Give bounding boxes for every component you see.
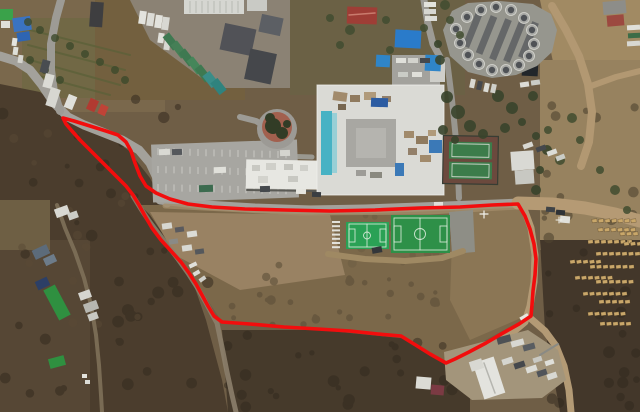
- woods-left-light-speck-12: [118, 200, 125, 207]
- beehive-row-2-box-4: [624, 228, 629, 232]
- woods-left-speckles-speck-16: [148, 298, 155, 305]
- beehive-row-11-box-4: [614, 312, 619, 316]
- beehive-row-5-box-1: [576, 260, 582, 264]
- aerial-photo-svg: [0, 0, 640, 412]
- beehive-row-5-box-0: [570, 260, 576, 264]
- woods-left-speckles-speck-28: [116, 338, 124, 346]
- br-road-car-1: [546, 207, 555, 213]
- hedge-dots-garden-clump-9: [111, 66, 119, 74]
- beehive-row-1-box-5: [624, 219, 629, 223]
- tree-clumps-center-clump-14: [531, 185, 541, 195]
- woods-left-speckles-speck-38: [40, 334, 51, 345]
- beehive-row-5-box-3: [589, 260, 595, 264]
- scrub-interior-speckles-speck-14: [345, 277, 354, 286]
- scrub-interior-speckles-speck-15: [387, 277, 391, 281]
- roof-clutter-2: [350, 95, 360, 102]
- blue-roof-east: [429, 140, 442, 153]
- beehive-row-6-box-0: [590, 265, 595, 269]
- beehive-row-12-box-3: [619, 322, 624, 326]
- beehive-row-3-box-0: [588, 240, 593, 244]
- scrub-interior-speckles-speck-23: [362, 280, 368, 286]
- scrub-interior-speckles-speck-16: [276, 262, 283, 269]
- woods-bottom-speckles-speck-18: [360, 366, 370, 376]
- woods-bottom-speckles-speck-22: [389, 341, 395, 347]
- tree-clumps-center-clump-3: [478, 129, 488, 139]
- woods-bottom-speckles-speck-6: [328, 375, 340, 387]
- road-car-2: [312, 192, 321, 197]
- beehive-row-7-box-5: [607, 276, 612, 280]
- beehive-row-14-box-1: [630, 242, 635, 246]
- beehive-row-2-box-5: [630, 228, 635, 232]
- storage-tank-top-3: [476, 61, 482, 67]
- woods-left-light-speck-14: [134, 314, 140, 320]
- hedge-dots-garden-clump-5: [96, 58, 104, 66]
- blue-roof-panel: [371, 98, 388, 108]
- woods-bottom-speckles-speck-21: [240, 369, 252, 381]
- beehive-row-8-box-5: [628, 280, 633, 284]
- beehive-row-9-box-4: [609, 292, 614, 296]
- tree-clumps-topright-clump-15: [623, 206, 631, 214]
- woods-left-speckles-speck-30: [65, 164, 70, 169]
- woods-rb-speckles-speck-17: [619, 330, 627, 338]
- woods-bottom-speckles-speck-13: [343, 394, 355, 406]
- toplot-car-4: [398, 72, 408, 77]
- scrub-right-speckles-speck-10: [551, 111, 561, 121]
- woods-left-light-speck-4: [69, 277, 77, 285]
- storage-tank-top-4: [489, 67, 495, 73]
- beehive-row-12-box-2: [613, 322, 618, 326]
- storage-tank-top-9: [529, 27, 535, 33]
- woods-left-speckles-speck-10: [114, 277, 124, 287]
- courtyard-inner: [356, 128, 386, 158]
- tree-clumps-topright-clump-6: [382, 16, 390, 24]
- front-wing-unit-5: [258, 176, 268, 183]
- beehive-row-13-box-1: [626, 232, 631, 236]
- beehive-row-6: [590, 265, 634, 269]
- hedge-dots-garden-clump-0: [24, 18, 32, 26]
- woods-left-speckles-speck-8: [29, 178, 38, 187]
- beehive-row-9-box-2: [596, 292, 601, 296]
- scrub-interior-speckles-speck-9: [231, 315, 236, 320]
- toplot-car-1: [396, 58, 406, 63]
- woods-left-light-speck-3: [73, 231, 82, 240]
- beehive-row-1: [592, 219, 636, 223]
- scrub-interior-speckles-speck-11: [337, 309, 342, 314]
- beehive-row-6-box-4: [616, 265, 621, 269]
- woods-left-speckles-speck-13: [74, 220, 79, 225]
- woods-bottom-speckles-speck-24: [237, 390, 247, 400]
- woods-bottom-speckles-speck-8: [268, 388, 274, 394]
- tree-clumps-topright-clump-12: [544, 126, 552, 134]
- beehive-row-8-box-2: [609, 280, 614, 284]
- front-wing-unit-4: [300, 165, 308, 171]
- er-truck-2: [628, 33, 640, 39]
- beehive-row-4-box-3: [615, 252, 620, 256]
- hedge-dots-garden-clump-10: [121, 76, 129, 84]
- woods-rb-speckles-speck-19: [633, 376, 640, 383]
- woods-rb-speckles-speck-13: [573, 305, 581, 313]
- tree-clumps-topright-clump-5: [326, 14, 334, 22]
- scrub-interior-speckles-speck-8: [257, 292, 263, 298]
- beehive-row-9-box-3: [602, 292, 607, 296]
- scrub-interior-speckles-speck-3: [385, 314, 391, 320]
- tl-blue-building-2: [16, 31, 30, 42]
- front-wing-shadow: [247, 190, 318, 191]
- tree-clumps-center-clump-8: [528, 91, 538, 101]
- tl-green-building: [0, 9, 13, 20]
- roof-clutter-11: [356, 170, 366, 176]
- woods-rb-speckles-speck-1: [546, 310, 553, 317]
- woods-left-speckles-speck-5: [75, 179, 84, 188]
- storage-tank-top-12: [493, 4, 499, 10]
- cyan-skylight-strip: [321, 111, 332, 175]
- beehive-row-10: [599, 300, 630, 304]
- lot-car-4: [260, 186, 270, 192]
- tree-clumps-center-clump-2: [464, 120, 476, 132]
- woods-rb-speckles-speck-9: [545, 270, 551, 276]
- woods-left-light-speck-8: [68, 318, 77, 327]
- scrub-interior-speckles-speck-6: [408, 281, 414, 287]
- tree-clumps-center-clump-6: [500, 123, 510, 133]
- front-wing-unit-1: [252, 165, 260, 171]
- woods-rb-speckles-speck-18: [554, 398, 564, 408]
- beehive-row-5: [570, 260, 602, 264]
- beehive-row-7-box-3: [594, 276, 599, 280]
- scrub-right-speckles-speck-6: [543, 170, 551, 178]
- beehive-row-6-box-6: [629, 265, 634, 269]
- woods-left-light-speck-16: [82, 244, 88, 250]
- beehive-row-9: [583, 292, 627, 296]
- beehive-row-6-box-3: [609, 265, 614, 269]
- roof-clutter-10: [420, 155, 431, 162]
- woods-bottom-speckles-speck-1: [295, 352, 301, 358]
- beehive-row-1-box-3: [611, 219, 616, 223]
- woods-left-speckles-speck-39: [152, 287, 164, 299]
- beehive-row-9-box-6: [622, 292, 627, 296]
- tree-clumps-topright-clump-8: [420, 24, 428, 32]
- beehive-row-14-box-0: [624, 242, 629, 246]
- tree-clumps-topright-clump-7: [386, 46, 394, 54]
- hedge-dots-garden-clump-2: [51, 34, 59, 42]
- woods-left-speckles-speck-31: [0, 373, 11, 384]
- woods-rb-speckles-speck-11: [603, 346, 615, 358]
- beehive-row-4-box-2: [609, 252, 614, 256]
- lot-green-bus: [199, 185, 213, 192]
- storage-tank-top-8: [531, 41, 537, 47]
- scrub-interior-speckles-speck-19: [313, 314, 318, 319]
- tree-clumps-topright-clump-1: [446, 16, 454, 24]
- er-truck-3: [627, 41, 640, 47]
- scrub-interior-speckles-speck-20: [266, 295, 275, 304]
- scrub-interior-speckles-speck-13: [262, 273, 270, 281]
- bl-terrace-field: [0, 200, 50, 250]
- dark-shed-top: [89, 2, 104, 28]
- woods-rb-speckles-speck-12: [617, 377, 628, 388]
- storage-tank-top-2: [465, 52, 471, 58]
- beehive-row-7-box-0: [575, 276, 580, 280]
- woods-left-light-speck-10: [44, 129, 52, 137]
- beehive-row-9-box-0: [583, 292, 588, 296]
- beehive-row-4: [596, 252, 640, 256]
- woods-left-speckles-speck-24: [122, 378, 134, 390]
- roof-clutter-5: [338, 104, 346, 110]
- beehive-row-11-box-3: [607, 312, 612, 316]
- scrub-interior-speckles-speck-24: [434, 301, 440, 307]
- warehouse-top2: [247, 0, 267, 11]
- beehive-row-12-box-0: [600, 322, 605, 326]
- scrub-interior-speckles-speck-1: [346, 314, 353, 321]
- scrub-right-speckles-speck-9: [547, 101, 556, 110]
- beehive-row-1-box-1: [598, 219, 603, 223]
- tree-clumps-center-clump-1: [451, 105, 465, 119]
- plaza-trees-clump-3: [283, 120, 291, 128]
- scrub-interior-speckles-speck-10: [229, 303, 236, 310]
- beehive-row-8-box-0: [596, 280, 601, 284]
- woods-left-speckles-speck-12: [175, 104, 181, 110]
- scrub-interior-speckles-speck-2: [433, 290, 437, 294]
- beehive-row-10-box-4: [625, 300, 630, 304]
- tree-clumps-topright-clump-10: [576, 136, 584, 144]
- woods-left-speckles-speck-23: [186, 378, 197, 389]
- beehive-row-11-box-0: [588, 312, 593, 316]
- woods-left-speckles-speck-20: [143, 367, 152, 376]
- road-car-1: [296, 189, 306, 194]
- woods-left-speckles-speck-14: [15, 322, 23, 330]
- woods-left-light-speck-5: [31, 160, 37, 166]
- storage-tank-top-13: [478, 7, 484, 13]
- beehive-row-4-box-0: [596, 252, 601, 256]
- beehive-row-11-box-5: [620, 312, 625, 316]
- beehive-row-9-box-1: [589, 292, 594, 296]
- tl-white-building: [1, 21, 10, 28]
- hedge-dots-garden-clump-4: [81, 50, 89, 58]
- lot-car-5: [280, 150, 290, 156]
- toplot-car-2: [408, 58, 418, 63]
- woods-bottom-speckles-speck-0: [243, 331, 252, 340]
- beehive-row-12: [600, 322, 631, 326]
- beehive-row-1-box-4: [618, 219, 623, 223]
- scrub-right-speckles-speck-1: [631, 103, 639, 111]
- woods-rb-speckles-speck-0: [604, 378, 614, 388]
- roof-clutter-7: [416, 136, 428, 144]
- storage-tank-top-5: [503, 67, 509, 73]
- woods-left-speckles-speck-26: [106, 188, 116, 198]
- plaza-trees-clump-1: [276, 127, 288, 139]
- beehive-row-10-box-0: [599, 300, 604, 304]
- beehive-row-9-box-5: [615, 292, 620, 296]
- beehive-row-10-box-1: [605, 300, 610, 304]
- woods-rb-speckles-speck-16: [625, 401, 635, 411]
- storage-tank-top-6: [516, 62, 522, 68]
- beehive-row-4-box-5: [628, 252, 633, 256]
- beehive-row-13-box-0: [620, 232, 625, 236]
- beehive-row-1-box-2: [605, 219, 610, 223]
- beehive-row-11-box-1: [594, 312, 599, 316]
- front-wing-unit-2: [266, 163, 276, 170]
- toplot-car-5: [412, 72, 422, 77]
- beehive-row-2-box-1: [604, 228, 609, 232]
- hedge-dots-garden-clump-1: [36, 26, 44, 34]
- woods-bottom-speckles-speck-23: [397, 369, 404, 376]
- tree-clumps-center-clump-0: [441, 91, 453, 103]
- right-edge-building-2: [607, 14, 625, 26]
- beehive-row-3-box-1: [594, 240, 599, 244]
- soccer-field: [391, 215, 450, 253]
- beehive-row-14: [624, 242, 640, 246]
- beehive-row-7-box-4: [601, 276, 606, 280]
- hedge-dots-garden-clump-8: [56, 76, 64, 84]
- beehive-row-4-box-4: [622, 252, 627, 256]
- woods-left-speckles-speck-36: [26, 389, 35, 398]
- woods-bottom-speckles-speck-9: [392, 355, 401, 364]
- scrub-interior-speckles-speck-22: [288, 299, 294, 305]
- beehive-row-2-box-3: [617, 228, 622, 232]
- storage-tank-top-0: [453, 26, 459, 32]
- se-white-building-2: [515, 169, 535, 184]
- futsal-court: [346, 222, 389, 249]
- woods-bottom-speckles-speck-15: [439, 342, 447, 350]
- lot-car-2: [172, 149, 182, 155]
- plaza-trees-clump-2: [265, 113, 275, 123]
- beehive-row-2-box-0: [598, 228, 603, 232]
- white-shed: [416, 376, 432, 389]
- beehive-row-8-box-1: [602, 280, 607, 284]
- beehive-row-8-box-3: [615, 280, 620, 284]
- beehive-row-10-box-2: [612, 300, 617, 304]
- tree-clumps-center-clump-13: [536, 166, 544, 174]
- top-car-row-1: [424, 2, 436, 7]
- woods-left-speckles-speck-27: [112, 316, 124, 328]
- blue-roof-south: [395, 163, 404, 176]
- br-road-car-2: [556, 210, 565, 216]
- storage-tank-top-1: [457, 40, 463, 46]
- woods-rb-speckles-speck-21: [616, 393, 624, 401]
- er-truck-1: [627, 25, 640, 31]
- tree-clumps-topright-clump-14: [610, 185, 620, 195]
- top-car-row-3: [425, 16, 437, 21]
- tree-clumps-topright-clump-9: [567, 113, 577, 123]
- tree-clumps-topright-clump-3: [345, 25, 355, 35]
- woods-rb-speckles-speck-15: [580, 248, 588, 256]
- woods-left-light-speck-2: [18, 244, 26, 252]
- woods-left-speckles-speck-34: [55, 386, 65, 396]
- woods-left-light-speck-9: [121, 192, 129, 200]
- storage-tank-top-7: [526, 53, 532, 59]
- front-wing-unit-6: [288, 176, 298, 182]
- woods-left-light-speck-15: [9, 134, 18, 143]
- lot-car-3: [214, 167, 226, 173]
- woods-left-speckles-speck-1: [146, 248, 154, 256]
- roof-clutter-6: [404, 131, 414, 138]
- field-gravel: [449, 210, 475, 254]
- scrub-right-speckles-speck-3: [628, 187, 639, 198]
- beehive-row-8-box-4: [622, 280, 627, 284]
- beehive-row-1-box-6: [631, 219, 636, 223]
- tree-clumps-center-clump-16: [434, 40, 442, 48]
- roof-clutter-9: [408, 148, 417, 155]
- bl-slope: [0, 240, 90, 412]
- beehive-row-13-box-2: [633, 232, 638, 236]
- satellite-image: [0, 0, 640, 412]
- beehive-row-10-box-3: [618, 300, 623, 304]
- roof-clutter-8: [428, 130, 436, 136]
- beehive-row-5-box-4: [596, 260, 602, 264]
- woods-left-speckles-speck-35: [168, 277, 179, 288]
- beehive-row-3-box-3: [607, 240, 612, 244]
- beehive-row-13: [620, 232, 638, 236]
- scrub-interior-speckles-speck-5: [270, 277, 278, 285]
- tree-clumps-center-clump-5: [506, 102, 518, 114]
- woods-bottom-speckles-speck-7: [273, 393, 280, 400]
- woods-left-speckles-speck-15: [86, 230, 98, 242]
- woods-left-speckles-speck-32: [131, 95, 140, 104]
- beehive-row-12-box-4: [626, 322, 631, 326]
- beehive-row-5-box-2: [583, 260, 589, 264]
- tree-clumps-topright-clump-13: [596, 166, 604, 174]
- front-wing-unit-3: [284, 164, 293, 170]
- beehive-row-6-box-2: [603, 265, 608, 269]
- beehive-row-7-box-1: [581, 276, 586, 280]
- woods-bottom-speckles-speck-4: [240, 402, 251, 412]
- tree-clumps-center-clump-9: [438, 125, 448, 135]
- beehive-row-12-box-1: [606, 322, 611, 326]
- bl-white-dot-2: [85, 380, 90, 384]
- roof-clutter-12: [370, 172, 382, 178]
- hedge-dots-garden-clump-3: [66, 42, 74, 50]
- field-stall-dashes: [332, 222, 340, 247]
- scrub-interior-speckles-speck-0: [417, 293, 425, 301]
- tree-clumps-topright-clump-4: [336, 41, 344, 49]
- woods-left-speckles-speck-9: [158, 112, 169, 123]
- tree-clumps-center-clump-15: [435, 55, 445, 65]
- storage-tank-top-14: [464, 14, 470, 20]
- lot-car-1: [159, 149, 170, 155]
- beehive-row-1-box-0: [592, 219, 597, 223]
- beehive-row-3-box-2: [601, 240, 606, 244]
- beehive-row-3-box-4: [614, 240, 619, 244]
- se-white-building-1: [510, 150, 534, 171]
- storage-tank-top-10: [521, 15, 527, 21]
- bl-white-dot-1: [82, 374, 87, 378]
- beehive-row-6-box-1: [596, 265, 601, 269]
- storage-tank-top-11: [508, 7, 514, 13]
- top-car-row-2: [424, 9, 436, 14]
- woods-bottom-speckles-speck-19: [309, 350, 314, 355]
- cyan-skylight-strip2: [332, 113, 337, 173]
- scrub-interior-speckles-speck-12: [387, 290, 394, 297]
- woods-rb-speckles-speck-7: [619, 367, 630, 378]
- beehive-row-7-box-2: [588, 276, 593, 280]
- blue-tarp-1: [376, 55, 391, 68]
- scrub-right-speckles-speck-0: [542, 215, 547, 220]
- beehive-row-4-box-1: [602, 252, 607, 256]
- scrub-right-speckles-speck-12: [544, 233, 555, 244]
- toplot-car-3: [420, 58, 430, 63]
- tree-clumps-center-clump-7: [518, 118, 526, 126]
- beehive-row-6-box-5: [622, 265, 627, 269]
- tree-clumps-center-clump-11: [532, 132, 540, 140]
- woods-left-light-speck-7: [25, 260, 32, 267]
- right-edge-building-1: [602, 0, 626, 15]
- tree-clumps-center-clump-10: [451, 136, 459, 144]
- tree-clumps-topright-clump-2: [456, 31, 464, 39]
- tree-clumps-topright-clump-0: [440, 0, 450, 10]
- beehive-row-2-box-2: [611, 228, 616, 232]
- beehive-row-11-box-2: [601, 312, 606, 316]
- red-shed: [431, 384, 445, 395]
- front-wing: [246, 159, 319, 189]
- blue-roof-building: [395, 29, 422, 48]
